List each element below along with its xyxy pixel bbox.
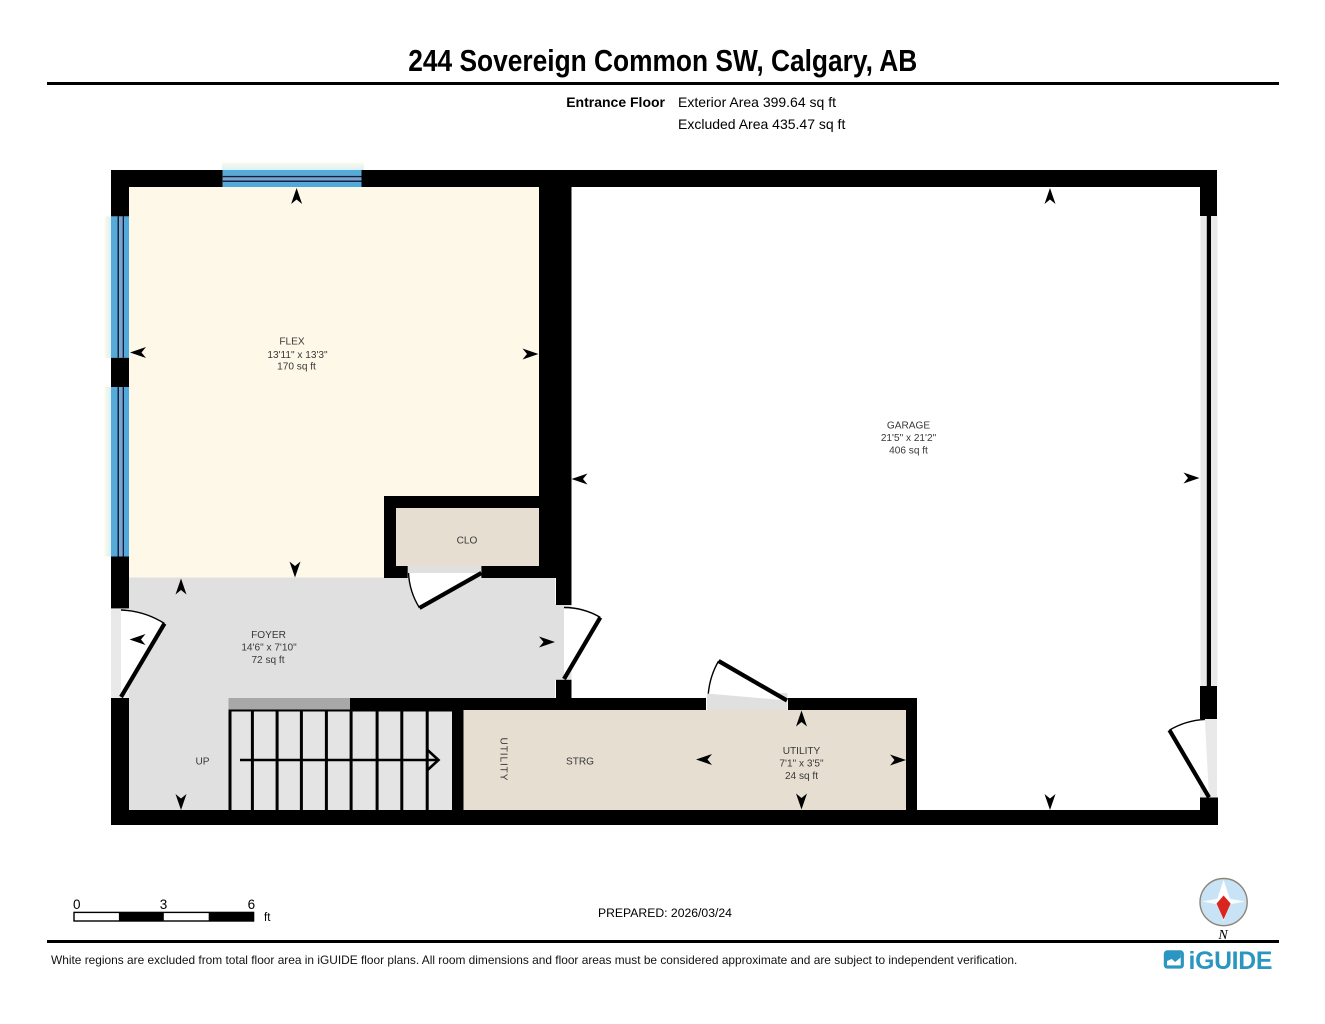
svg-text:72 sq ft: 72 sq ft — [251, 655, 284, 666]
svg-text:UTILITY: UTILITY — [783, 746, 821, 757]
svg-text:UP: UP — [195, 757, 209, 768]
svg-text:0: 0 — [73, 897, 81, 912]
svg-text:13'11" x 13'3": 13'11" x 13'3" — [267, 350, 328, 361]
svg-text:STRG: STRG — [566, 757, 594, 768]
svg-text:FLEX: FLEX — [279, 337, 305, 348]
svg-text:iGUIDE: iGUIDE — [1189, 948, 1273, 975]
svg-text:GARAGE: GARAGE — [887, 421, 930, 432]
svg-text:CLO: CLO — [457, 536, 478, 547]
svg-text:FOYER: FOYER — [251, 630, 286, 641]
svg-text:ft: ft — [264, 912, 271, 924]
svg-text:7'1" x 3'5": 7'1" x 3'5" — [779, 759, 824, 770]
svg-text:6: 6 — [248, 897, 256, 912]
svg-text:170 sq ft: 170 sq ft — [277, 361, 316, 372]
svg-text:406 sq ft: 406 sq ft — [889, 446, 928, 457]
svg-text:UTILITY: UTILITY — [498, 738, 509, 782]
svg-text:14'6" x 7'10": 14'6" x 7'10" — [241, 643, 297, 654]
svg-text:24 sq ft: 24 sq ft — [785, 771, 818, 782]
svg-text:3: 3 — [160, 897, 168, 912]
svg-text:21'5" x 21'2": 21'5" x 21'2" — [881, 433, 937, 444]
